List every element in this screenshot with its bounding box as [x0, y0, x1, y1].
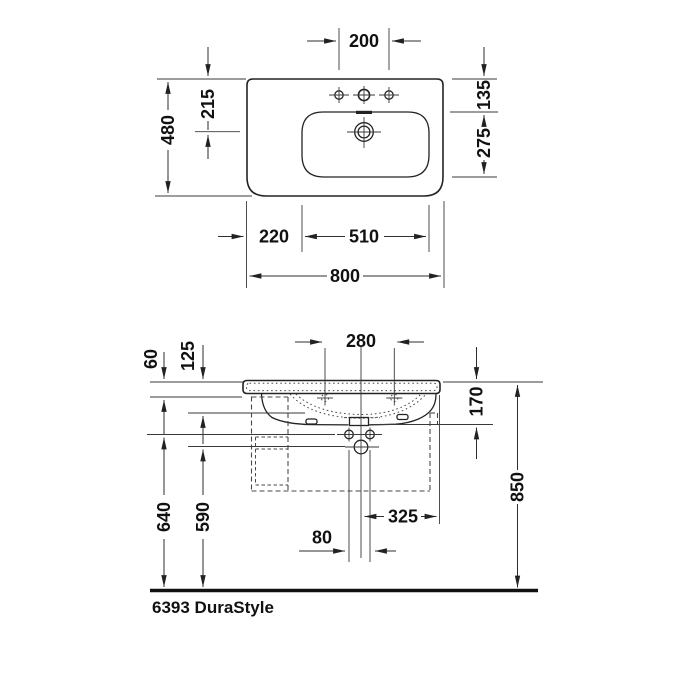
dim-label-200: 200 [349, 31, 379, 51]
faucet-hole-right [379, 87, 399, 103]
inner-bowl-outline [302, 112, 429, 177]
dim-label-80: 80 [312, 528, 332, 548]
dim-basin-inset-back: 135 [474, 47, 494, 110]
dim-overall-height: 850 [508, 385, 528, 588]
dim-label-325: 325 [388, 507, 418, 527]
dim-label-510: 510 [349, 227, 379, 247]
top-view-extension-lines [155, 28, 498, 288]
dimension-drawing: 200 480 215 135 275 220 [0, 0, 700, 700]
product-caption: 6393 DuraStyle [152, 598, 274, 617]
faucet-hole-left [329, 87, 349, 103]
dim-drain-from-back: 215 [198, 47, 218, 159]
technical-drawing-page: 200 480 215 135 275 220 [0, 0, 700, 700]
front-view: 280 60 125 170 640 5 [141, 331, 543, 591]
dim-label-640: 640 [154, 502, 174, 532]
dim-label-275: 275 [474, 128, 494, 158]
top-view: 200 480 215 135 275 220 [155, 28, 498, 288]
dim-label-135: 135 [474, 80, 494, 110]
dim-label-215: 215 [198, 89, 218, 119]
dim-outlet-depth: 170 [467, 347, 487, 459]
dim-basin-inner-depth: 275 [474, 115, 494, 174]
dim-mounting-hole-spacing: 280 [295, 331, 424, 351]
faucet-holes [329, 86, 399, 104]
dim-basin-inner-width: 510 [305, 227, 426, 247]
dim-overall-depth: 480 [158, 82, 178, 193]
glaze-foot-right [397, 415, 408, 420]
dim-overall-width: 800 [250, 266, 442, 286]
dim-label-125: 125 [178, 341, 198, 371]
drain-flange [350, 418, 369, 426]
dim-label-800: 800 [330, 266, 360, 286]
dim-label-220: 220 [259, 227, 289, 247]
dim-outlet-to-right-edge: 325 [365, 507, 437, 527]
rim-section [243, 381, 440, 394]
dim-label-170: 170 [467, 386, 487, 416]
siphon-recess [256, 437, 289, 485]
dim-siphon-height: 590 [193, 450, 213, 588]
dim-label-850: 850 [508, 472, 528, 502]
dim-fixing-bolt-spacing: 80 [299, 528, 396, 552]
faucet-hole-center [353, 86, 375, 104]
dim-faucet-hole-spacing: 200 [307, 31, 421, 51]
dim-mounting-height: 640 [154, 438, 174, 588]
dim-label-480: 480 [158, 115, 178, 145]
dim-left-deck-width: 220 [218, 227, 289, 247]
dim-rim-height: 60 [141, 349, 164, 434]
vanity-unit-hidden-outline [252, 397, 438, 492]
basin-outline [247, 79, 443, 196]
drain-icon [347, 117, 381, 148]
dim-label-60: 60 [141, 349, 161, 369]
dim-label-280: 280 [346, 331, 376, 351]
glaze-foot-left [306, 419, 317, 424]
outlet-assembly [337, 418, 382, 454]
dim-body-height: 125 [178, 341, 203, 444]
dim-label-590: 590 [193, 502, 213, 532]
